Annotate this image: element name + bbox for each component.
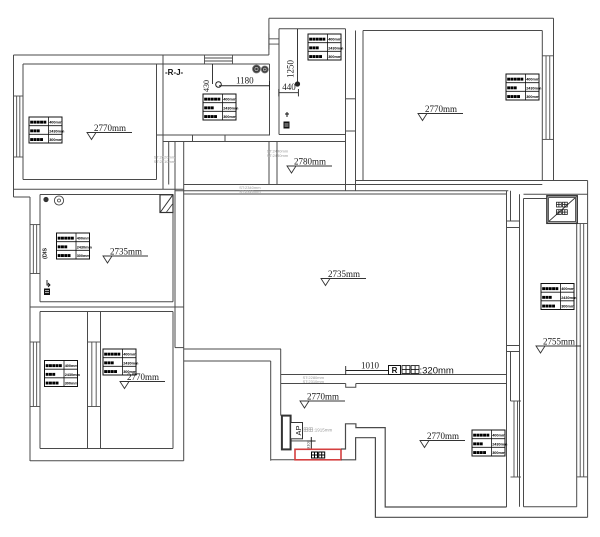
svg-text::1915mm: :1915mm xyxy=(314,428,333,433)
svg-text:2780mm: 2780mm xyxy=(294,157,326,167)
svg-text:2770mm: 2770mm xyxy=(427,431,459,441)
svg-text:300mm: 300mm xyxy=(328,55,342,59)
svg-text:400mm: 400mm xyxy=(526,78,540,82)
svg-text:1250: 1250 xyxy=(286,60,296,79)
svg-text:2770mm: 2770mm xyxy=(127,372,159,382)
svg-text::320mm: :320mm xyxy=(420,366,454,377)
svg-text:2430mm: 2430mm xyxy=(328,46,344,50)
svg-text:300mm: 300mm xyxy=(77,254,91,258)
svg-text:1010: 1010 xyxy=(361,361,380,371)
svg-text:2735mm: 2735mm xyxy=(328,269,360,279)
svg-text:2755mm: 2755mm xyxy=(543,337,575,347)
svg-text:R: R xyxy=(392,366,398,375)
svg-text:430: 430 xyxy=(202,80,211,92)
svg-text:ST:2480mm: ST:2480mm xyxy=(267,153,289,158)
svg-text:(DIS: (DIS xyxy=(43,248,49,259)
svg-text:ST:2310mm: ST:2310mm xyxy=(239,189,261,194)
svg-text:-R-J-: -R-J- xyxy=(165,68,184,77)
svg-text:400mm: 400mm xyxy=(561,287,575,291)
svg-text:2735mm: 2735mm xyxy=(110,247,142,257)
svg-text:400mm: 400mm xyxy=(328,38,342,42)
svg-text:2430mm: 2430mm xyxy=(65,373,81,377)
svg-text:400mm: 400mm xyxy=(223,98,237,102)
svg-text:440: 440 xyxy=(282,82,296,92)
svg-text:2430mm: 2430mm xyxy=(77,245,93,249)
svg-text:2430mm: 2430mm xyxy=(223,106,239,110)
svg-text:2770mm: 2770mm xyxy=(425,104,457,114)
svg-text:2430mm: 2430mm xyxy=(492,442,508,446)
svg-text:2430mm: 2430mm xyxy=(526,86,542,90)
svg-text:400mm: 400mm xyxy=(49,121,63,125)
svg-text:300mm: 300mm xyxy=(223,115,237,119)
svg-text:ST:2410mm: ST:2410mm xyxy=(154,159,176,164)
svg-text:2430mm: 2430mm xyxy=(123,361,139,365)
svg-text:1180: 1180 xyxy=(236,76,254,86)
svg-text:AP: AP xyxy=(294,425,303,435)
svg-text:400mm: 400mm xyxy=(77,237,91,241)
svg-text:2770mm: 2770mm xyxy=(307,392,339,402)
svg-text:300mm: 300mm xyxy=(492,451,506,455)
svg-text:400mm: 400mm xyxy=(123,353,137,357)
svg-text:300mm: 300mm xyxy=(49,138,63,142)
svg-text:400mm: 400mm xyxy=(65,364,79,368)
svg-text:300mm: 300mm xyxy=(561,305,575,309)
svg-text:ST:2310mm: ST:2310mm xyxy=(303,379,325,384)
svg-text:2430mm: 2430mm xyxy=(561,296,577,300)
svg-text:300mm: 300mm xyxy=(65,382,79,386)
svg-text:2770mm: 2770mm xyxy=(94,123,126,133)
svg-text:400mm: 400mm xyxy=(492,434,506,438)
svg-text:910: 910 xyxy=(306,442,311,449)
svg-text:2430mm: 2430mm xyxy=(49,129,65,133)
svg-text:300mm: 300mm xyxy=(526,95,540,99)
